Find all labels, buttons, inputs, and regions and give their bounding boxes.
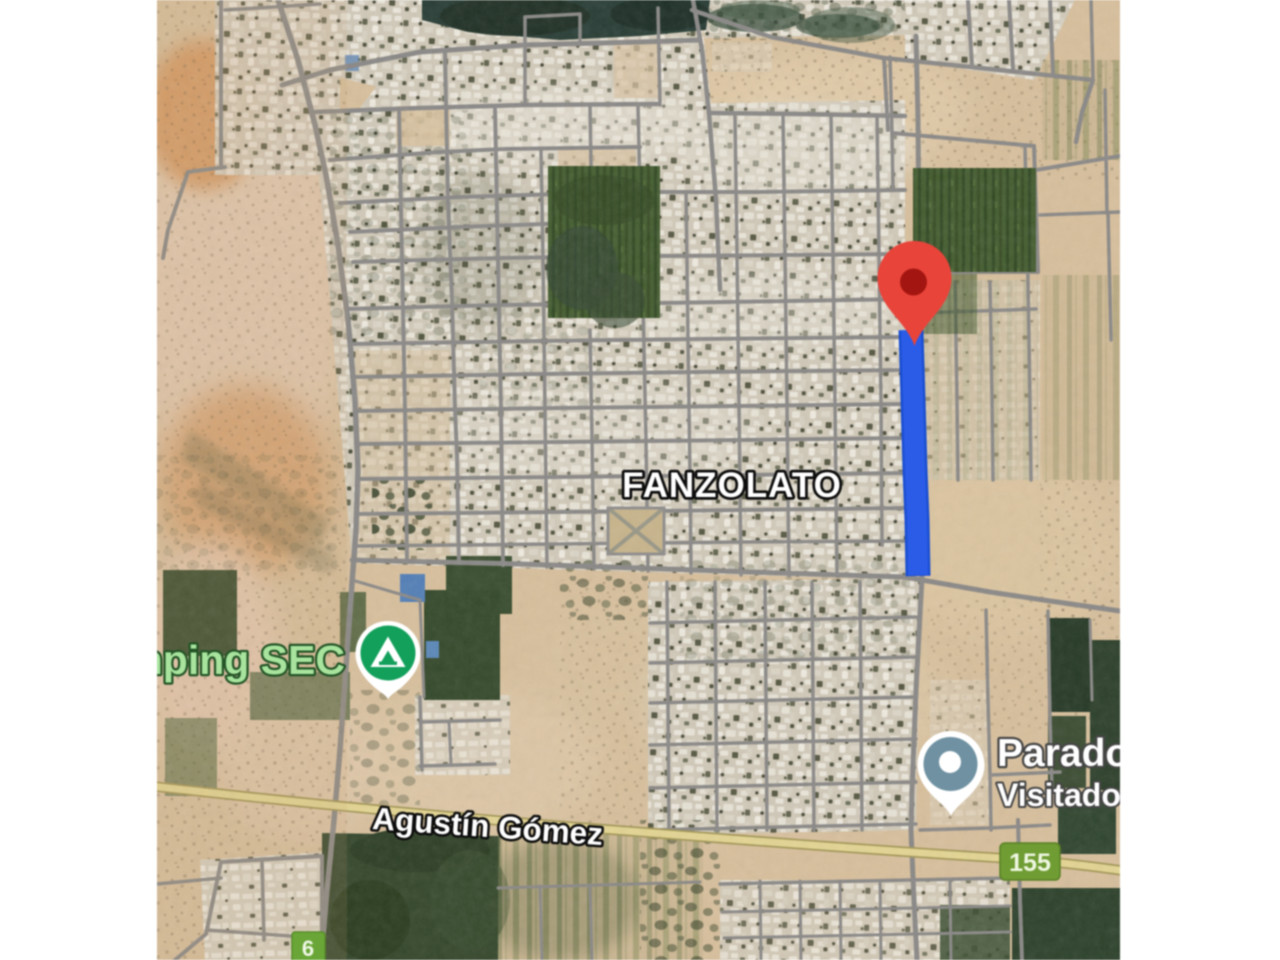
svg-text:Visitados: Visitados [997, 777, 1139, 813]
svg-text:155: 155 [1009, 849, 1051, 877]
svg-text:6: 6 [302, 936, 314, 960]
svg-text:mping SEC: mping SEC [126, 637, 345, 683]
svg-text:FANZOLATO: FANZOLATO [622, 466, 842, 505]
